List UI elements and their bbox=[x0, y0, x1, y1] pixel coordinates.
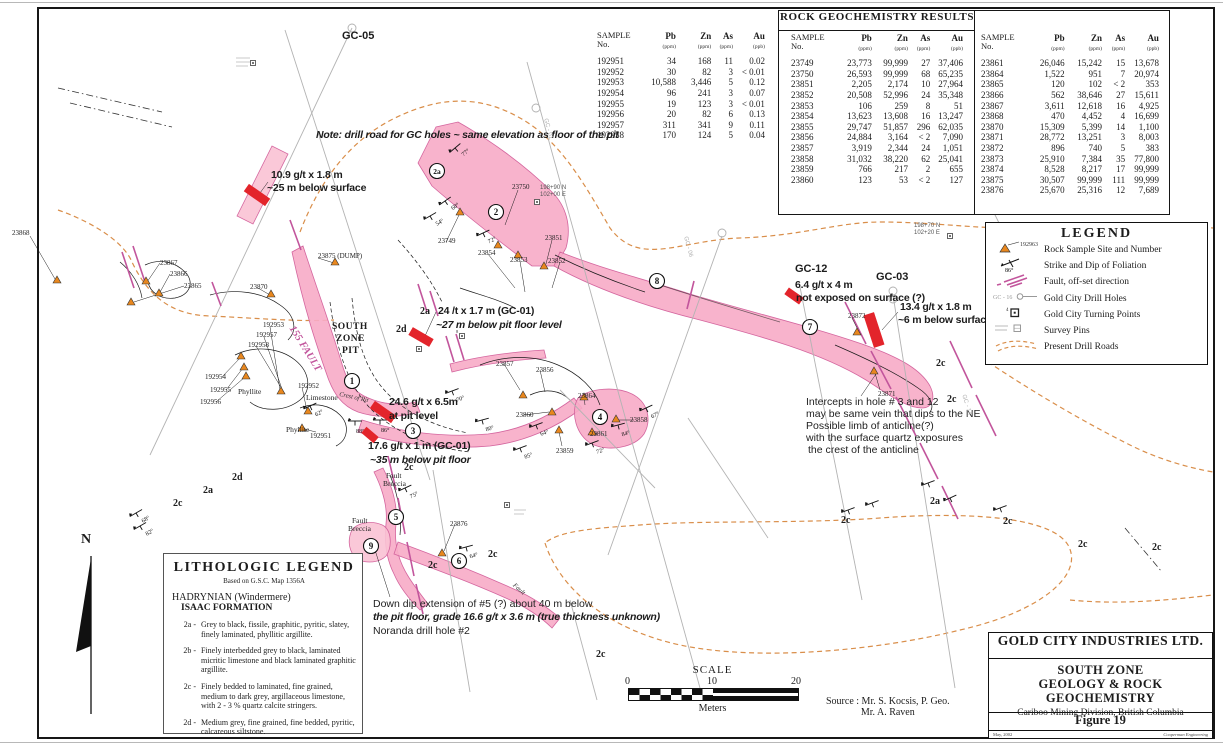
geochem-row: 192955191233< 0.01 bbox=[597, 99, 765, 110]
map-label-u: 2c bbox=[428, 560, 437, 571]
svg-text:62°: 62° bbox=[314, 408, 325, 418]
scale-bar-checker bbox=[629, 689, 713, 700]
map-label-ann: 10.9 g/t x 1.8 m bbox=[271, 169, 343, 181]
map-label-gc: GC-12 bbox=[795, 263, 827, 275]
map-label-u: 2c bbox=[1078, 539, 1087, 550]
map-label-pit: PIT bbox=[342, 346, 359, 356]
geochem-row: 2386656238,6462715,611 bbox=[981, 90, 1159, 101]
map-label-s: 23860 bbox=[516, 411, 534, 419]
svg-text:GC - 16: GC - 16 bbox=[993, 295, 1012, 301]
scale-ticks: 0 10 20 bbox=[615, 676, 810, 687]
map-label-pl: Phyllite bbox=[286, 425, 309, 434]
map-label-u: 2a bbox=[420, 306, 430, 317]
geochem-row: 19295230823< 0.01 bbox=[597, 67, 765, 78]
svg-text:4: 4 bbox=[1006, 308, 1009, 313]
geochem-row: 238673,61112,618164,925 bbox=[981, 101, 1159, 112]
map-label-tiny2: 102+20 E bbox=[914, 230, 940, 237]
geochem-row: 2385624,8843,164< 27,090 bbox=[791, 132, 963, 143]
map-label-s: 23867 bbox=[160, 259, 178, 267]
lithologic-era: HADRYNIAN (Windermere) bbox=[172, 592, 356, 603]
map-label-tiny2: 198+70 N bbox=[914, 223, 940, 230]
map-label-u: 2d bbox=[396, 324, 407, 335]
lithologic-legend-box: LITHOLOGIC LEGEND Based on G.S.C. Map 13… bbox=[163, 553, 363, 734]
geochem-row: 2387128,77213,25138,003 bbox=[981, 132, 1159, 143]
legend-item-label: Gold City Drill Holes bbox=[1044, 294, 1127, 304]
scale-tick-20: 20 bbox=[791, 676, 801, 687]
svg-text:75°: 75° bbox=[409, 490, 420, 500]
map-label-ann: ~6 m below surface bbox=[898, 314, 992, 326]
title-block-footer: May, 2002 Cooperman Engineering bbox=[989, 731, 1212, 739]
map-label-pl: Breccia bbox=[348, 524, 371, 533]
map-label-anni: Note: drill road for GC holes ~ same ele… bbox=[316, 129, 619, 141]
svg-text:5: 5 bbox=[394, 512, 399, 522]
map-label-s: 23866 bbox=[170, 270, 188, 278]
lithologic-units: 2a -Grey to black, fissile, graphitic, p… bbox=[172, 620, 356, 737]
geochem-row: 2387015,3095,399141,100 bbox=[981, 122, 1159, 133]
svg-text:54°: 54° bbox=[434, 217, 445, 228]
map-label-u: 2c bbox=[404, 462, 413, 473]
geochem-row: 19295817012450.04 bbox=[597, 130, 765, 141]
svg-text:64°: 64° bbox=[469, 551, 480, 560]
scale-bar: SCALE 0 10 20 Meters bbox=[615, 664, 810, 714]
geochem-group: SAMPLENo.Pb(ppm)Zn(ppm)As(ppm)Au(ppb)237… bbox=[791, 33, 963, 185]
map-label-s: 192953 bbox=[263, 321, 284, 329]
svg-text:192963: 192963 bbox=[1020, 242, 1038, 248]
svg-text:80°: 80° bbox=[485, 424, 496, 433]
map-label-ann: ~25 m below surface bbox=[267, 182, 366, 194]
geochem-row: 2385220,50852,9962435,348 bbox=[791, 90, 963, 101]
geochem-row: 238684704,452416,699 bbox=[981, 111, 1159, 122]
map-label-s: 23871 bbox=[878, 390, 896, 398]
map-label-s: 23851 bbox=[545, 234, 563, 242]
map-title: SOUTH ZONE GEOLOGY & ROCK GEOCHEMISTRY C… bbox=[989, 659, 1212, 713]
legend-box: LEGEND 192963Rock Sample Site and Number… bbox=[985, 222, 1208, 365]
geochem-row: 2385831,03238,2206225,041 bbox=[791, 154, 963, 165]
svg-text:86°: 86° bbox=[381, 427, 390, 434]
figure-credit: Cooperman Engineering bbox=[1163, 732, 1208, 737]
geochem-row: 2385413,62313,6081613,247 bbox=[791, 111, 963, 122]
map-label-u: 2c bbox=[1003, 516, 1012, 527]
map-label-u: 2a bbox=[203, 485, 213, 496]
geochem-row: 2387625,67025,316127,689 bbox=[981, 185, 1159, 196]
geochem-row: 238748,5288,2171799,999 bbox=[981, 164, 1159, 175]
svg-text:85°: 85° bbox=[523, 451, 534, 461]
title-block: GOLD CITY INDUSTRIES LTD. SOUTH ZONE GEO… bbox=[988, 632, 1213, 739]
map-label-s: 23864 bbox=[578, 392, 596, 400]
geochem-row: 19295731134190.11 bbox=[597, 120, 765, 131]
figure-page: { "figure": { "company": "GOLD CITY INDU… bbox=[0, 0, 1223, 745]
map-label-pit: SOUTH bbox=[332, 322, 368, 332]
legend-item-label: Strike and Dip of Foliation bbox=[1044, 261, 1146, 271]
map-label-u: 2a bbox=[930, 496, 940, 507]
geochem-title: ROCK GEOCHEMISTRY RESULTS bbox=[779, 11, 975, 31]
lithologic-unit: 2a -Grey to black, fissile, graphitic, p… bbox=[172, 620, 356, 639]
geochem-row: 238728967405383 bbox=[981, 143, 1159, 154]
source-line1: Source : Mr. S. Kocsis, P. Geo. bbox=[826, 696, 950, 707]
map-label-ann2: Intercepts in hole # 3 and 12 bbox=[806, 396, 939, 408]
map-label-s: 23859 bbox=[556, 447, 574, 455]
map-label-gc: GC-03 bbox=[876, 271, 908, 283]
svg-text:2a: 2a bbox=[433, 167, 441, 176]
map-label-ann2: the crest of the anticline bbox=[808, 444, 919, 456]
road-legend-icon bbox=[992, 336, 1044, 358]
source-line2: Mr. A. Raven bbox=[826, 707, 950, 718]
figure-date: May, 2002 bbox=[993, 732, 1012, 737]
map-label-u: 2c bbox=[936, 358, 945, 369]
map-label-u: 2c bbox=[173, 498, 182, 509]
geochem-row: 192956208260.13 bbox=[597, 109, 765, 120]
map-label-ann2: may be same vein that dips to the NE bbox=[806, 408, 981, 420]
map-label-anni: ~35 m below pit floor bbox=[370, 454, 471, 466]
north-label: N bbox=[81, 532, 91, 548]
map-title-line2: GEOLOGY & ROCK bbox=[989, 677, 1212, 691]
legend-item-label: Gold City Turning Points bbox=[1044, 310, 1140, 320]
map-label-u: 2c bbox=[596, 649, 605, 660]
map-label-ann2: Possible limb of anticline(?) bbox=[806, 420, 934, 432]
map-label-u: 2c bbox=[947, 394, 956, 405]
company-name: GOLD CITY INDUSTRIES LTD. bbox=[989, 633, 1212, 659]
map-label-s: 23870 bbox=[250, 283, 268, 291]
svg-text:2: 2 bbox=[494, 207, 499, 217]
map-label-s: 23861 bbox=[590, 430, 608, 438]
map-label-tiny2: 198+90 N bbox=[540, 185, 566, 192]
map-label-u: 2c bbox=[1152, 542, 1161, 553]
north-arrow bbox=[76, 556, 91, 714]
map-label-s: 23749 bbox=[438, 237, 456, 245]
map-label-s: 192954 bbox=[205, 373, 226, 381]
map-label-s: 23865 bbox=[184, 282, 202, 290]
geochem-row: 23865120102< 2353 bbox=[981, 79, 1159, 90]
svg-text:1: 1 bbox=[350, 376, 355, 386]
map-label-u: 2d bbox=[232, 472, 243, 483]
map-label-ann: 17.6 g/t x 1 m (GC-01) bbox=[368, 440, 470, 452]
geochem-row: 1929549624130.07 bbox=[597, 88, 765, 99]
map-label-s: 23856 bbox=[536, 366, 554, 374]
legend-item-label: Survey Pins bbox=[1044, 326, 1090, 336]
map-label-u: 2c bbox=[488, 549, 497, 560]
map-label-ann2: Noranda drill hole #2 bbox=[373, 625, 470, 637]
geochem-row: 2374923,77399,9992737,406 bbox=[791, 58, 963, 69]
map-label-s: 23853 bbox=[510, 256, 528, 264]
legend-rows: 192963Rock Sample Site and Number86°Stri… bbox=[986, 242, 1207, 355]
map-label-s: 192951 bbox=[310, 432, 331, 440]
map-label-ann: 13.4 g/t x 1.8 m bbox=[900, 301, 972, 313]
legend-item-label: Present Drill Roads bbox=[1044, 342, 1118, 352]
scale-tick-0: 0 bbox=[625, 676, 630, 687]
geochem-row: 238597662172655 bbox=[791, 164, 963, 175]
geochem-row: 2386126,04615,2421513,678 bbox=[981, 58, 1159, 69]
map-label-anni: ~27 m below pit floor level bbox=[436, 319, 562, 331]
map-label-ann2: Down dip extension of #5 (?) about 40 m … bbox=[373, 598, 592, 610]
scale-unit: Meters bbox=[615, 703, 810, 714]
map-label-s: 23852 bbox=[548, 257, 566, 265]
geochem-row: 23853106259851 bbox=[791, 101, 963, 112]
legend-item-label: Fault, off-set direction bbox=[1044, 277, 1129, 287]
lithologic-unit: 2b -Finely interbedded grey to black, la… bbox=[172, 646, 356, 675]
map-label-s: 23872 bbox=[848, 312, 866, 320]
lithologic-subtitle: Based on G.S.C. Map 1356A bbox=[172, 577, 356, 585]
scale-bar-solid bbox=[713, 689, 798, 700]
geochem-group: SAMPLENo.Pb(ppm)Zn(ppm)As(ppm)Au(ppb)192… bbox=[597, 31, 765, 141]
svg-text:8: 8 bbox=[655, 276, 660, 286]
legend-item-label: Rock Sample Site and Number bbox=[1044, 245, 1162, 255]
map-label-s: 192958 bbox=[248, 341, 269, 349]
geochem-row: 2385529,74751,85729662,035 bbox=[791, 122, 963, 133]
svg-text:6: 6 bbox=[457, 556, 462, 566]
geochem-row: 238512,2052,1741027,964 bbox=[791, 79, 963, 90]
geochem-row: 2387325,9107,3843577,800 bbox=[981, 154, 1159, 165]
map-label-s: 192955 bbox=[210, 386, 231, 394]
map-label-s: 23868 bbox=[12, 229, 30, 237]
source-note: Source : Mr. S. Kocsis, P. Geo. Mr. A. R… bbox=[826, 696, 950, 718]
geochem-row: 2386012353< 2127 bbox=[791, 175, 963, 186]
map-label-pl: Breccia bbox=[383, 479, 406, 488]
lithologic-unit: 2d -Medium grey, fine grained, fine bedd… bbox=[172, 718, 356, 737]
map-label-ann: 6.4 g/t x 4 m bbox=[795, 279, 853, 291]
map-label-s: 23876 bbox=[450, 520, 468, 528]
scale-bar-graphic bbox=[628, 688, 799, 701]
map-label-tiny2: 102+00 E bbox=[540, 192, 566, 199]
map-label-u: 2c bbox=[841, 515, 850, 526]
map-label-s: 23875 (DUMP) bbox=[318, 252, 362, 260]
map-label-s: 23854 bbox=[478, 249, 496, 257]
geochem-row: 238573,9192,344241,051 bbox=[791, 143, 963, 154]
geochem-row: 238641,522951720,974 bbox=[981, 69, 1159, 80]
map-label-s: 192957 bbox=[256, 331, 277, 339]
geochem-row: 2375026,59399,9996865,235 bbox=[791, 69, 963, 80]
map-label-ann: at pit level bbox=[389, 410, 438, 422]
map-label-s: 192956 bbox=[200, 398, 221, 406]
svg-text:4: 4 bbox=[598, 412, 603, 422]
scale-tick-10: 10 bbox=[707, 676, 717, 687]
map-label-s: 23858 bbox=[630, 416, 648, 424]
geochem-row: 19295310,5883,44650.12 bbox=[597, 77, 765, 88]
lithologic-formation: ISAAC FORMATION bbox=[181, 603, 356, 613]
map-label-pit: ZONE bbox=[336, 334, 365, 344]
map-label-ann2: with the surface quartz exposures bbox=[806, 432, 963, 444]
map-label-anni: the pit floor, grade 16.6 g/t x 3.6 m (t… bbox=[373, 611, 660, 623]
geochem-group: SAMPLENo.Pb(ppm)Zn(ppm)As(ppm)Au(ppb)238… bbox=[981, 33, 1159, 196]
map-label-s: 23857 bbox=[496, 360, 514, 368]
map-label-s: 23750 bbox=[512, 183, 530, 191]
map-label-ann: 24.6 g/t x 6.5m bbox=[389, 396, 458, 408]
map-label-pl: Limestone bbox=[306, 393, 338, 402]
map-label-ann: 24 /t x 1.7 m (GC-01) bbox=[438, 305, 534, 317]
lithologic-unit: 2c -Finely bedded to laminated, fine gra… bbox=[172, 682, 356, 711]
svg-text:82°: 82° bbox=[144, 527, 155, 538]
geochem-row: 2387530,50799,99911199,999 bbox=[981, 175, 1159, 186]
scale-title: SCALE bbox=[615, 664, 810, 676]
legend-item: Present Drill Roads bbox=[992, 339, 1207, 355]
lithologic-title: LITHOLOGIC LEGEND bbox=[172, 560, 356, 576]
map-title-line3: GEOCHEMISTRY bbox=[989, 691, 1212, 705]
svg-text:7: 7 bbox=[808, 322, 813, 332]
map-label-s: 192952 bbox=[298, 382, 319, 390]
svg-text:3: 3 bbox=[411, 426, 416, 436]
map-title-line1: SOUTH ZONE bbox=[989, 663, 1212, 677]
map-label-gc: GC-05 bbox=[342, 30, 374, 42]
geochem-row: 19295134168110.02 bbox=[597, 56, 765, 67]
svg-text:9: 9 bbox=[369, 541, 374, 551]
map-label-pl: Phyllite bbox=[238, 387, 261, 396]
